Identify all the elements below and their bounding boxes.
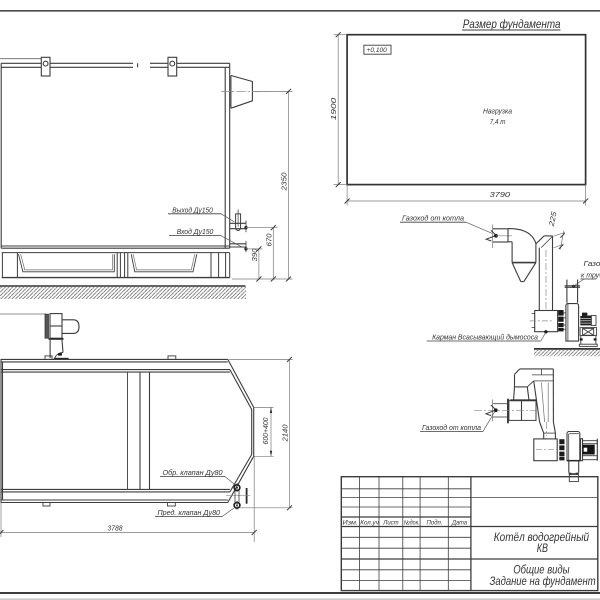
svg-text:Подп.: Подп. bbox=[427, 519, 443, 526]
svg-text:Газоход от котла: Газоход от котла bbox=[402, 214, 464, 223]
svg-text:Задание на фундамент: Задание на фундамент bbox=[490, 576, 596, 588]
svg-text:Выход Ду150: Выход Ду150 bbox=[172, 205, 213, 214]
svg-text:+0,100: +0,100 bbox=[367, 47, 388, 54]
svg-text:390: 390 bbox=[250, 248, 259, 262]
svg-text:Лист: Лист bbox=[382, 519, 398, 526]
svg-text:Дата: Дата bbox=[451, 519, 467, 526]
svg-text:600+400: 600+400 bbox=[261, 417, 270, 445]
svg-text:Газоход: Газоход bbox=[584, 259, 600, 268]
svg-text:2350: 2350 bbox=[280, 172, 289, 192]
svg-text:Карман Всасывающий дымососа: Карман Всасывающий дымососа bbox=[432, 333, 538, 342]
svg-text:1900: 1900 bbox=[329, 96, 338, 120]
svg-text:Кол.уч: Кол.уч bbox=[360, 519, 379, 526]
svg-text:2140: 2140 bbox=[281, 424, 290, 443]
svg-text:Пред. клапан Ду80: Пред. клапан Ду80 bbox=[158, 508, 221, 517]
svg-text:Вход Ду150: Вход Ду150 bbox=[177, 227, 214, 236]
svg-text:7,4 т: 7,4 т bbox=[490, 117, 506, 126]
svg-text:3788: 3788 bbox=[108, 524, 124, 533]
svg-text:Изм.: Изм. bbox=[343, 519, 359, 526]
svg-text:КВ: КВ bbox=[537, 543, 548, 555]
svg-text:Размер фундамента: Размер фундамента bbox=[463, 17, 561, 31]
svg-text:3790: 3790 bbox=[490, 190, 511, 199]
svg-text:Общие виды: Общие виды bbox=[513, 564, 570, 576]
svg-text:№док.: №док. bbox=[404, 519, 420, 526]
svg-text:Нагрузка: Нагрузка bbox=[483, 107, 512, 116]
svg-text:670: 670 bbox=[264, 233, 273, 247]
svg-text:Газоход от котла: Газоход от котла bbox=[422, 423, 481, 432]
svg-text:Обр. клапан Ду80: Обр. клапан Ду80 bbox=[163, 468, 224, 477]
svg-text:к трубе: к трубе bbox=[581, 270, 600, 279]
